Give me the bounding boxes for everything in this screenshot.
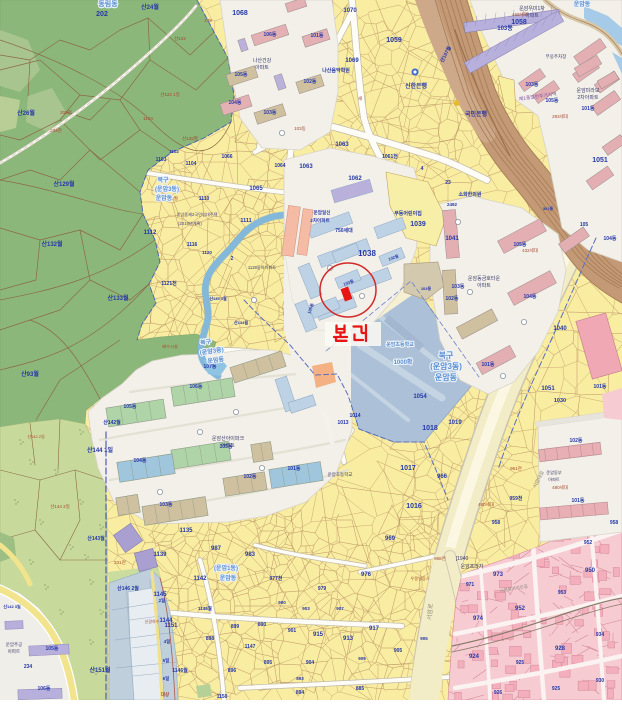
svg-text:(2019년계획): (2019년계획): [178, 220, 202, 227]
svg-text:2차아파트: 2차아파트: [577, 94, 599, 101]
svg-text:101동: 101동: [582, 105, 595, 112]
svg-text:102동: 102동: [446, 295, 459, 302]
svg-text:산128월: 산128월: [182, 135, 198, 142]
svg-text:1051: 1051: [592, 157, 608, 164]
svg-text:산142월: 산142월: [103, 419, 121, 426]
svg-text:952: 952: [584, 540, 593, 546]
svg-text:1145: 1145: [153, 592, 167, 598]
svg-text:부웅주차장: 부웅주차장: [546, 53, 567, 60]
svg-text:1000확: 1000확: [394, 358, 413, 366]
svg-text:900: 900: [278, 600, 286, 605]
svg-text:1068: 1068: [232, 10, 248, 17]
svg-text:952: 952: [515, 606, 526, 612]
svg-text:1146월: 1146월: [172, 667, 188, 674]
svg-text:1051: 1051: [541, 386, 555, 392]
svg-text:운암동제2국민임대주택: 운암동제2국민임대주택: [177, 211, 218, 218]
svg-text:1144: 1144: [159, 618, 173, 624]
svg-text:293세대: 293세대: [552, 113, 568, 120]
svg-text:958: 958: [492, 520, 501, 526]
svg-text:23: 23: [445, 180, 451, 186]
svg-text:104동: 104동: [134, 457, 147, 464]
svg-text:104동: 104동: [229, 99, 242, 106]
svg-text:102동: 102동: [304, 78, 317, 85]
svg-text:1061천: 1061천: [382, 153, 398, 160]
svg-text:1014: 1014: [349, 413, 360, 419]
svg-text:운암동: 운암동: [220, 574, 237, 582]
svg-text:930: 930: [596, 678, 605, 684]
svg-text:나산음악학원: 나산음악학원: [322, 67, 350, 74]
svg-text:973: 973: [493, 572, 504, 578]
svg-text:961천: 961천: [510, 465, 522, 471]
svg-text:101동: 101동: [288, 465, 301, 472]
svg-text:운암우미1차: 운암우미1차: [519, 5, 545, 12]
svg-text:959천: 959천: [510, 495, 523, 502]
svg-text:2일: 2일: [159, 597, 166, 604]
svg-text:101동: 101동: [594, 383, 607, 390]
svg-text:103동: 103동: [294, 126, 306, 131]
svg-text:산122 1일: 산122 1일: [160, 91, 180, 97]
svg-text:(운암1동): (운암1동): [214, 564, 238, 572]
svg-text:203천: 203천: [60, 109, 72, 115]
svg-text:5일: 5일: [163, 657, 170, 664]
svg-text:1142: 1142: [193, 576, 207, 582]
svg-text:106동: 106동: [190, 383, 203, 390]
svg-text:750세대: 750세대: [335, 227, 353, 234]
svg-text:105동: 105동: [235, 71, 248, 78]
svg-text:[1940: [1940: [456, 556, 469, 562]
svg-text:1059: 1059: [386, 37, 402, 44]
svg-text:102동: 102동: [244, 473, 257, 480]
svg-text:103동: 103동: [421, 285, 432, 291]
svg-text:913: 913: [343, 636, 354, 642]
svg-text:204천: 204천: [50, 127, 62, 133]
svg-text:1128동아아파트: 1128동아아파트: [248, 264, 276, 271]
svg-text:무등어린이집: 무등어린이집: [394, 210, 422, 217]
svg-text:운암초등학교: 운암초등학교: [386, 341, 414, 348]
svg-text:운암일신: 운암일신: [314, 209, 331, 216]
svg-text:909: 909: [358, 656, 366, 661]
svg-text:동림동: 동림동: [98, 0, 118, 8]
svg-text:1030: 1030: [554, 398, 566, 404]
svg-text:운암동: 운암동: [435, 372, 458, 382]
svg-text:974: 974: [473, 616, 484, 622]
svg-text:아파트: 아파트: [8, 648, 20, 655]
svg-text:운암동금호타운: 운암동금호타운: [468, 275, 501, 282]
svg-text:1039: 1039: [410, 221, 426, 228]
svg-text:432세대: 432세대: [522, 247, 538, 254]
svg-text:915: 915: [313, 632, 324, 638]
svg-text:105동: 105동: [124, 403, 137, 410]
svg-text:(운암3동): (운암3동): [430, 361, 462, 371]
svg-text:885: 885: [356, 686, 365, 692]
svg-text:231천: 231천: [114, 559, 126, 565]
svg-text:301동: 301동: [543, 205, 554, 211]
svg-text:1147: 1147: [245, 644, 256, 650]
svg-text:6일: 6일: [163, 675, 170, 682]
svg-text:894: 894: [296, 690, 305, 696]
svg-text:977천: 977천: [270, 575, 283, 582]
svg-text:966: 966: [437, 474, 448, 480]
svg-text:산93월: 산93월: [21, 370, 39, 378]
svg-text:1058: 1058: [511, 19, 527, 26]
svg-text:934: 934: [596, 632, 605, 638]
svg-text:1017: 1017: [400, 465, 416, 472]
svg-text:아파트: 아파트: [255, 64, 269, 71]
svg-text:산122: 산122: [174, 35, 186, 41]
svg-text:202: 202: [96, 11, 108, 18]
svg-text:산129월: 산129월: [53, 180, 75, 188]
svg-text:895: 895: [264, 660, 273, 666]
svg-text:1018: 1018: [422, 425, 438, 432]
svg-text:운암동: 운암동: [156, 194, 173, 202]
svg-text:106동: 106동: [264, 31, 277, 38]
svg-text:1103: 1103: [156, 157, 167, 163]
svg-text:운암주공: 운암주공: [6, 641, 23, 648]
svg-text:1110: 1110: [199, 196, 210, 202]
svg-text:987: 987: [211, 546, 222, 552]
svg-text:893: 893: [296, 676, 304, 681]
svg-text:106동: 106동: [38, 685, 51, 692]
svg-text:1135: 1135: [179, 528, 193, 534]
svg-text:산24월: 산24월: [141, 3, 159, 11]
svg-text:103동: 103동: [497, 24, 513, 32]
svg-text:대상: 대상: [161, 691, 170, 698]
svg-text:1111: 1111: [240, 218, 251, 224]
svg-text:480세대: 480세대: [478, 501, 494, 508]
svg-text:905: 905: [420, 636, 428, 641]
svg-text:1054: 1054: [413, 394, 427, 400]
svg-text:1019: 1019: [448, 420, 462, 426]
svg-text:104동: 104동: [524, 293, 537, 300]
svg-text:890: 890: [258, 622, 267, 628]
svg-text:우몽빌증스: 우몽빌증스: [410, 575, 429, 582]
svg-text:아파트: 아파트: [525, 12, 539, 19]
svg-text:산135 3월: 산135 3월: [209, 295, 227, 301]
svg-text:1069: 1069: [345, 58, 359, 64]
svg-text:산151월: 산151월: [89, 666, 111, 674]
svg-text:896: 896: [228, 668, 237, 674]
svg-text:1102: 1102: [169, 149, 179, 154]
svg-text:산134월: 산134월: [234, 319, 248, 325]
svg-text:운암프라자: 운암프라자: [460, 563, 483, 570]
svg-text:아파트: 아파트: [548, 476, 560, 483]
svg-text:904: 904: [306, 660, 315, 666]
svg-text:907: 907: [336, 606, 344, 611]
svg-text:971: 971: [466, 582, 475, 588]
svg-text:1041: 1041: [445, 236, 459, 242]
svg-text:953: 953: [558, 590, 567, 596]
svg-text:4일: 4일: [164, 638, 171, 645]
svg-text:979: 979: [318, 586, 327, 592]
svg-text:산132월: 산132월: [41, 240, 63, 248]
svg-text:983: 983: [245, 552, 256, 558]
svg-text:105동: 105동: [514, 241, 527, 248]
svg-text:926: 926: [494, 690, 503, 696]
svg-text:1064: 1064: [274, 163, 285, 169]
svg-text:234: 234: [24, 664, 33, 670]
svg-text:1063: 1063: [335, 142, 349, 148]
svg-text:2차아파트: 2차아파트: [310, 217, 330, 224]
svg-text:새: 새: [358, 95, 362, 102]
svg-text:아파트: 아파트: [221, 442, 235, 449]
svg-text:105: 105: [580, 222, 589, 228]
svg-text:1150: 1150: [217, 694, 228, 700]
svg-text:103동: 103동: [160, 501, 173, 508]
svg-text:운암동부: 운암동부: [546, 469, 562, 476]
svg-text:나산건강: 나산건강: [253, 57, 272, 64]
svg-text:101동: 101동: [482, 361, 495, 368]
svg-text:4: 4: [421, 166, 424, 172]
svg-text:배수시설: 배수시설: [162, 343, 178, 350]
svg-text:1040: 1040: [553, 326, 567, 332]
svg-text:산142 2일: 산142 2일: [27, 433, 45, 439]
svg-text:901: 901: [288, 628, 297, 634]
svg-text:1065: 1065: [249, 186, 263, 192]
svg-text:925: 925: [552, 686, 561, 692]
svg-text:산142 3일: 산142 3일: [3, 603, 21, 609]
svg-text:1121천: 1121천: [161, 280, 177, 287]
svg-text:산26월: 산26월: [17, 109, 35, 117]
svg-text:1104: 1104: [186, 161, 197, 167]
svg-text:1066: 1066: [221, 154, 232, 160]
svg-text:905: 905: [394, 648, 403, 654]
svg-text:278: 278: [204, 18, 212, 23]
svg-text:917: 917: [369, 626, 380, 632]
svg-text:산143월: 산143월: [87, 535, 105, 542]
svg-text:신경하수: 신경하수: [145, 618, 160, 624]
svg-text:산133월: 산133월: [107, 294, 129, 302]
svg-text:950: 950: [585, 568, 596, 574]
svg-text:운암미라보: 운암미라보: [576, 87, 599, 94]
svg-text:103동: 103동: [264, 109, 277, 116]
svg-text:903: 903: [302, 606, 310, 611]
svg-text:480세대: 480세대: [552, 484, 568, 491]
svg-text:101동: 101동: [572, 497, 585, 504]
svg-text:1063: 1063: [299, 164, 313, 170]
svg-text:신한은행: 신한은행: [405, 82, 428, 90]
svg-text:899: 899: [231, 624, 240, 630]
svg-text:968천: 968천: [434, 555, 446, 561]
svg-text:105동: 105동: [46, 645, 59, 652]
svg-text:(운암3동): (운암3동): [155, 185, 179, 193]
svg-text:운암초등학교: 운암초등학교: [328, 471, 353, 478]
svg-text:1120: 1120: [202, 250, 212, 255]
svg-text:산144 2일: 산144 2일: [50, 503, 70, 509]
svg-text:1139: 1139: [153, 552, 167, 558]
svg-text:소화한의원: 소화한의원: [458, 191, 481, 198]
svg-text:898: 898: [206, 636, 215, 642]
svg-text:969: 969: [385, 536, 396, 542]
svg-text:103동: 103동: [526, 81, 539, 88]
svg-text:운암산아이파크: 운암산아이파크: [212, 435, 245, 442]
svg-text:101동: 101동: [311, 32, 324, 39]
svg-text:1070: 1070: [343, 8, 357, 14]
svg-text:산146 2월: 산146 2월: [117, 585, 139, 592]
svg-text:1104: 1104: [143, 116, 153, 121]
svg-text:104동: 104동: [604, 235, 617, 242]
svg-text:산144 1일: 산144 1일: [87, 446, 114, 454]
svg-text:976: 976: [361, 572, 372, 578]
svg-text:1116: 1116: [187, 242, 198, 248]
svg-text:958: 958: [610, 520, 619, 526]
svg-text:북구: 북구: [439, 350, 454, 360]
svg-text:운암동: 운암동: [574, 0, 591, 8]
svg-text:북구: 북구: [157, 176, 169, 184]
svg-text:1038: 1038: [358, 249, 376, 258]
svg-text:1146월: 1146월: [198, 605, 212, 612]
svg-text:102동: 102동: [570, 437, 583, 444]
svg-text:1112: 1112: [144, 230, 157, 236]
svg-text:아파트: 아파트: [477, 282, 491, 289]
svg-text:1062: 1062: [348, 176, 362, 182]
svg-text:국민은행: 국민은행: [465, 110, 488, 118]
svg-text:928: 928: [555, 646, 566, 652]
svg-text:925: 925: [516, 660, 525, 666]
svg-text:1016: 1016: [406, 503, 422, 510]
svg-text:924: 924: [469, 654, 480, 660]
svg-text:2: 2: [231, 256, 234, 262]
svg-text:1013: 1013: [337, 420, 348, 426]
svg-text:2492: 2492: [447, 202, 458, 207]
svg-text:103동: 103동: [452, 283, 465, 290]
